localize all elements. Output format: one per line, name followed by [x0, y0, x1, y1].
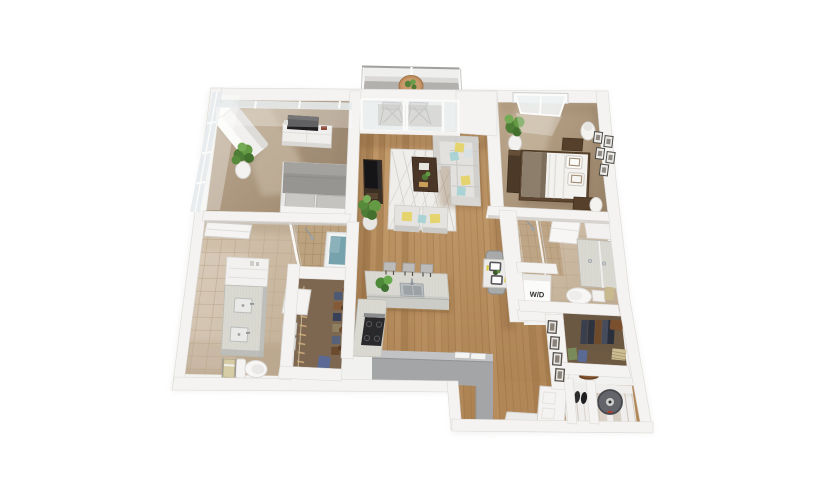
svg-text:W/D: W/D	[530, 290, 545, 300]
